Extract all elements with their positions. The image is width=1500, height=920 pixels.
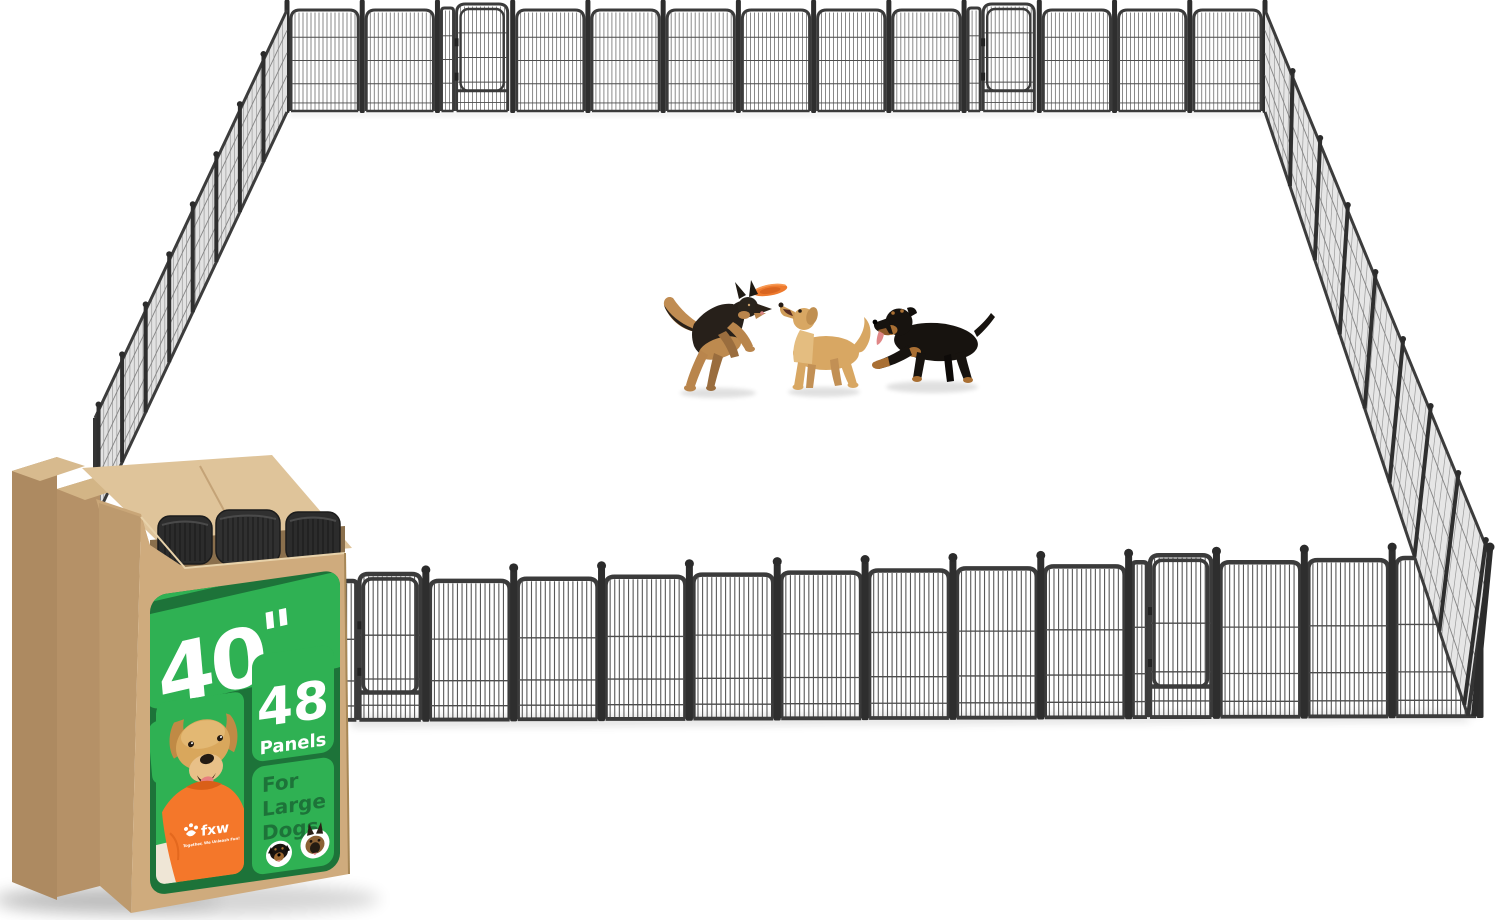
fence-gate-panel <box>968 4 1034 111</box>
fence-panel <box>517 10 584 111</box>
fence-panel <box>1045 566 1125 717</box>
post-ball-finial <box>260 51 266 57</box>
fence-gate-panel <box>1133 555 1212 717</box>
fence-post <box>510 570 517 722</box>
rottweiler-shadow <box>886 381 978 393</box>
fence-post <box>862 562 869 721</box>
fence-post <box>1187 0 1192 113</box>
post-ball-finial <box>1372 269 1378 275</box>
fence-post <box>1037 0 1042 113</box>
post-ball-finial <box>1212 547 1221 556</box>
dogs-playing <box>664 280 995 392</box>
fence-post <box>774 564 781 721</box>
fence-panel <box>893 10 960 111</box>
fence-gate-panel <box>441 4 507 111</box>
fence-panel <box>366 10 433 111</box>
fence-panel <box>592 10 659 111</box>
post-ball-finial <box>190 201 196 207</box>
post-ball-finial <box>119 351 125 357</box>
post-ball-finial <box>1317 135 1323 141</box>
packaging-box: 40 " tall 48 Panels For Large Dogs <box>12 455 358 913</box>
post-ball-finial <box>1290 68 1296 74</box>
post-ball-finial <box>1345 202 1351 208</box>
post-ball-finial <box>1388 543 1397 552</box>
fence-panel <box>518 579 598 719</box>
fence-panel <box>869 571 949 719</box>
fence-post <box>661 0 666 113</box>
post-ball-finial <box>509 563 518 572</box>
fence-post <box>1301 551 1308 718</box>
fence-gate-panel <box>342 574 421 720</box>
frisbee-icon <box>752 282 788 299</box>
fence-post <box>598 568 605 721</box>
post-ball-finial <box>1124 549 1133 558</box>
post-ball-finial <box>1400 336 1406 342</box>
post-ball-finial <box>685 559 694 568</box>
post-ball-finial <box>861 555 870 564</box>
fence-panel <box>1119 10 1186 111</box>
fence-post <box>435 0 440 113</box>
fence-left-wall <box>95 10 287 520</box>
fence-post <box>1290 73 1293 186</box>
fence-panel <box>667 10 734 111</box>
fence-post <box>962 0 967 113</box>
fence-panel <box>291 10 358 111</box>
fence-post <box>1389 549 1396 718</box>
post-ball-finial <box>166 251 172 257</box>
german-shepherd <box>664 280 772 392</box>
post-ball-finial <box>597 561 606 570</box>
post-ball-finial <box>1036 551 1045 560</box>
fence-panel <box>430 581 510 720</box>
fence-post <box>510 0 515 113</box>
fence-panel <box>693 575 773 719</box>
post-ball-finial <box>143 301 149 307</box>
fence-post <box>1037 557 1044 719</box>
fence-near-wall <box>334 541 1485 723</box>
fence-post <box>736 0 741 113</box>
fence-panel <box>1220 562 1300 717</box>
post-ball-finial <box>421 565 430 574</box>
fence-post <box>1213 553 1220 719</box>
post-ball-finial <box>237 101 243 107</box>
fence-post <box>686 566 693 721</box>
post-ball-finial <box>773 557 782 566</box>
fence-panel <box>781 573 861 719</box>
fence-post <box>886 0 891 113</box>
fence-panel <box>1194 10 1261 111</box>
post-ball-finial <box>96 401 102 407</box>
post-ball-finial <box>213 151 219 157</box>
label-cell-photo: fxw Together, We Unleash Fun! <box>156 691 244 885</box>
rottweiler <box>872 307 995 383</box>
box-3-side <box>12 457 57 900</box>
fence-panel <box>957 568 1037 717</box>
product-image: 40 " tall 48 Panels For Large Dogs <box>0 0 1500 920</box>
fence-post <box>585 0 590 113</box>
fence-far-wall <box>284 0 1268 113</box>
fence-post <box>422 572 429 722</box>
fence-post <box>949 559 956 719</box>
fence-post <box>360 0 365 113</box>
fence-post <box>811 0 816 113</box>
fence-panel <box>1043 10 1110 111</box>
fence-post <box>1112 0 1117 113</box>
fence-panel <box>742 10 809 111</box>
fence-panel <box>606 577 686 719</box>
box-2-side <box>57 476 100 897</box>
fence-panel <box>1308 560 1388 716</box>
post-ball-finial <box>1483 537 1489 543</box>
post-ball-finial <box>1300 545 1309 554</box>
fence-panel <box>818 10 885 111</box>
scene-svg: 40 " tall 48 Panels For Large Dogs <box>0 0 1500 920</box>
post-ball-finial <box>1428 403 1434 409</box>
golden-retriever <box>779 303 871 391</box>
post-ball-finial <box>948 553 957 562</box>
fence-post <box>1125 555 1132 719</box>
post-ball-finial <box>1455 470 1461 476</box>
